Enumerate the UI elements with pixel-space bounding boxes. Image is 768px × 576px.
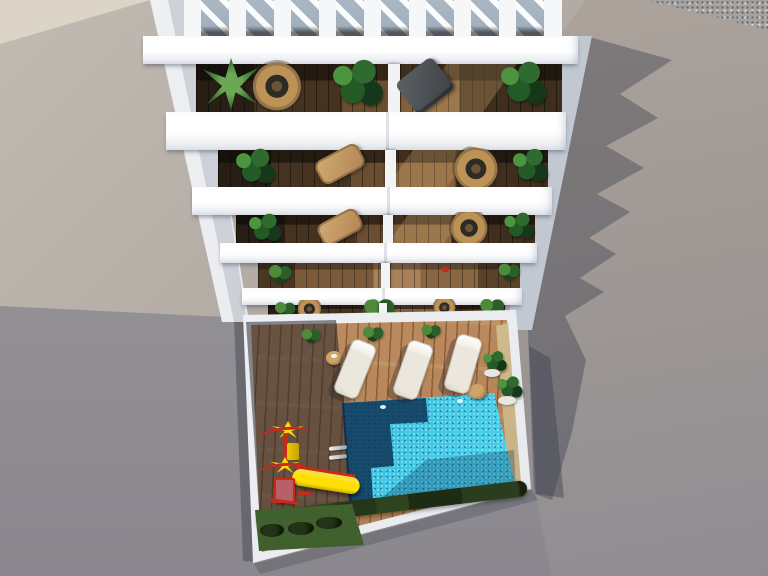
balcony-slab-2	[166, 112, 566, 150]
pergola-opening-4	[336, 0, 364, 36]
floor3-divider-wall	[383, 215, 393, 243]
playground-leg-2	[298, 492, 311, 495]
deck-pot-2	[498, 396, 516, 405]
floor2-divider-wall	[385, 150, 396, 187]
pergola-opening-5	[381, 0, 409, 36]
pergola-opening-6	[426, 0, 454, 36]
side-table-2	[468, 384, 487, 399]
pergola-opening-3	[291, 0, 319, 36]
floor3-plant-right	[498, 211, 538, 241]
side-table-1-item	[331, 354, 337, 358]
balcony-slab-3	[192, 187, 552, 215]
pergola-opening-8	[516, 0, 544, 36]
floor1-banana-plant	[323, 56, 389, 112]
pergola-opening-7	[471, 0, 499, 36]
pergola-opening-1	[201, 0, 229, 36]
slab3-seam	[387, 187, 390, 215]
floor4-divider-wall	[381, 263, 390, 288]
aerial-render-canvas	[0, 0, 768, 576]
floor1-plant-right	[492, 58, 552, 110]
pergola-roof	[184, 0, 562, 38]
slab4-seam	[384, 243, 387, 263]
floor2-plant-right	[506, 146, 552, 186]
slab2-seam	[386, 112, 389, 150]
floor3-hanging-chair	[446, 212, 494, 244]
floor2-plant-left	[228, 146, 280, 188]
pool-light-1	[380, 405, 386, 409]
deck-pot-1	[484, 369, 500, 377]
balcony-slab-4	[220, 243, 537, 263]
floor3-plant-left	[242, 212, 286, 244]
floor4-red-object	[442, 267, 449, 272]
pergola-opening-2	[246, 0, 274, 36]
pool-light-2	[457, 399, 463, 403]
playground-yellow-box	[287, 443, 299, 460]
